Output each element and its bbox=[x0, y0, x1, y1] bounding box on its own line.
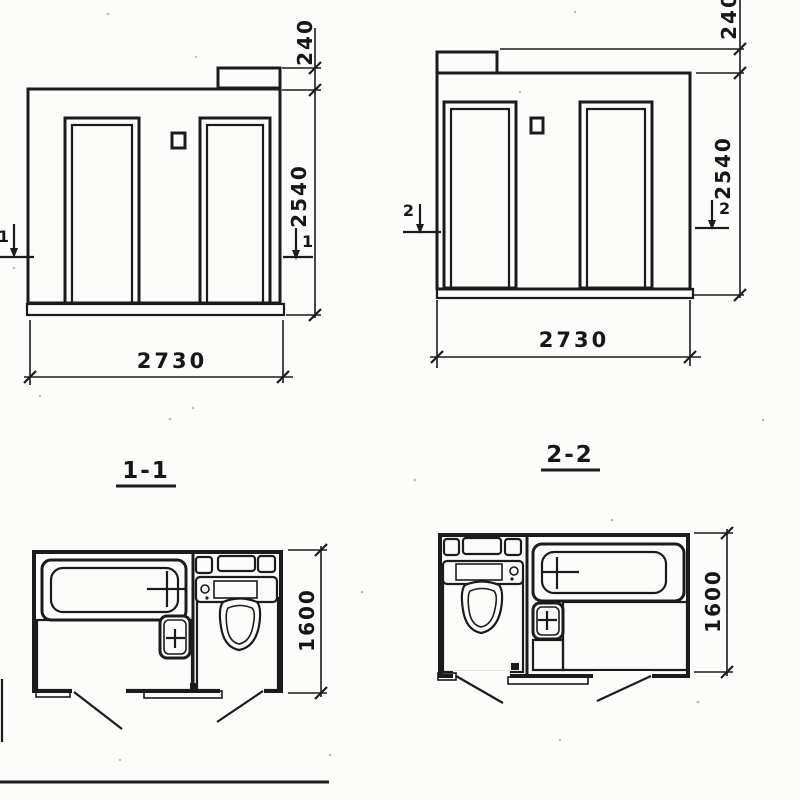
door-right-leaf bbox=[207, 125, 263, 303]
door-right-frame bbox=[200, 118, 270, 303]
section-marker-1-right: 1 bbox=[283, 228, 313, 260]
tiled-floor-hatch-bath bbox=[563, 602, 687, 670]
drawing-sheet: 1 1 240 2540 2730 bbox=[0, 0, 800, 800]
entry-step bbox=[508, 677, 588, 684]
door-pivot-block bbox=[511, 663, 519, 670]
door-right-frame bbox=[580, 102, 652, 288]
shelf-box bbox=[444, 539, 459, 555]
elevation-2-width-dimension: 2730 bbox=[430, 300, 701, 368]
elevation-2-height-dimension: 240 2540 bbox=[500, 0, 746, 301]
section-marker-2-left: 2 bbox=[403, 201, 441, 234]
dim-parapet-height: 240 bbox=[717, 0, 741, 40]
section-title-2-2: 2-2 bbox=[541, 442, 600, 470]
door-left-frame bbox=[65, 118, 139, 303]
dim-width: 2730 bbox=[137, 349, 207, 373]
door-swing bbox=[74, 692, 122, 729]
section-title-label: 1-1 bbox=[122, 458, 170, 484]
section-digit: 2 bbox=[719, 199, 730, 218]
door-right-leaf bbox=[587, 109, 645, 288]
section-title-label: 2-2 bbox=[546, 442, 594, 468]
shelf-box bbox=[505, 539, 521, 555]
dim-depth: 1600 bbox=[701, 569, 725, 633]
section-title-1-1: 1-1 bbox=[116, 458, 176, 486]
elevation-1: 1 1 240 2540 2730 bbox=[0, 18, 321, 385]
dim-depth: 1600 bbox=[295, 588, 319, 652]
shelf-box bbox=[463, 538, 501, 554]
drain-dot bbox=[510, 577, 513, 580]
plan-2-2: 1600 bbox=[438, 527, 733, 703]
small-window bbox=[531, 118, 543, 133]
section-digit: 1 bbox=[302, 232, 313, 251]
elevation-1-width-dimension: 2730 bbox=[24, 320, 293, 385]
dim-body-height: 2540 bbox=[287, 164, 311, 228]
plan-2-2-depth-dimension: 1600 bbox=[694, 527, 733, 678]
tiled-floor-hatch-bath bbox=[533, 640, 563, 670]
dim-body-height: 2540 bbox=[711, 136, 735, 200]
elevation-1-height-dimension: 240 2540 bbox=[282, 18, 321, 321]
drain-dot bbox=[205, 596, 208, 599]
section-digit: 2 bbox=[403, 201, 414, 220]
door-left-frame bbox=[444, 102, 516, 288]
roof-vent-block bbox=[437, 52, 497, 73]
door-left-leaf bbox=[72, 125, 132, 303]
cabin-base-plate bbox=[27, 304, 284, 315]
door-left-leaf bbox=[451, 109, 509, 288]
door-opening bbox=[72, 687, 126, 696]
plan-1-1-depth-dimension: 1600 bbox=[288, 544, 327, 699]
dim-width: 2730 bbox=[539, 328, 609, 352]
section-marker-2-right: 2 bbox=[695, 199, 730, 230]
plan-1-1: 1600 bbox=[34, 544, 327, 729]
shelf-box bbox=[218, 556, 255, 571]
elevation-2: 2 2 240 2540 2730 bbox=[403, 0, 746, 368]
section-digit: 1 bbox=[0, 227, 9, 246]
shelf-box bbox=[196, 557, 212, 573]
small-window bbox=[172, 133, 185, 148]
dim-parapet-height: 240 bbox=[293, 18, 317, 66]
drawing-canvas: 1 1 240 2540 2730 bbox=[0, 0, 800, 800]
shelf-box bbox=[258, 556, 275, 572]
roof-vent-block bbox=[218, 68, 280, 88]
door-pivot-block bbox=[190, 683, 198, 690]
